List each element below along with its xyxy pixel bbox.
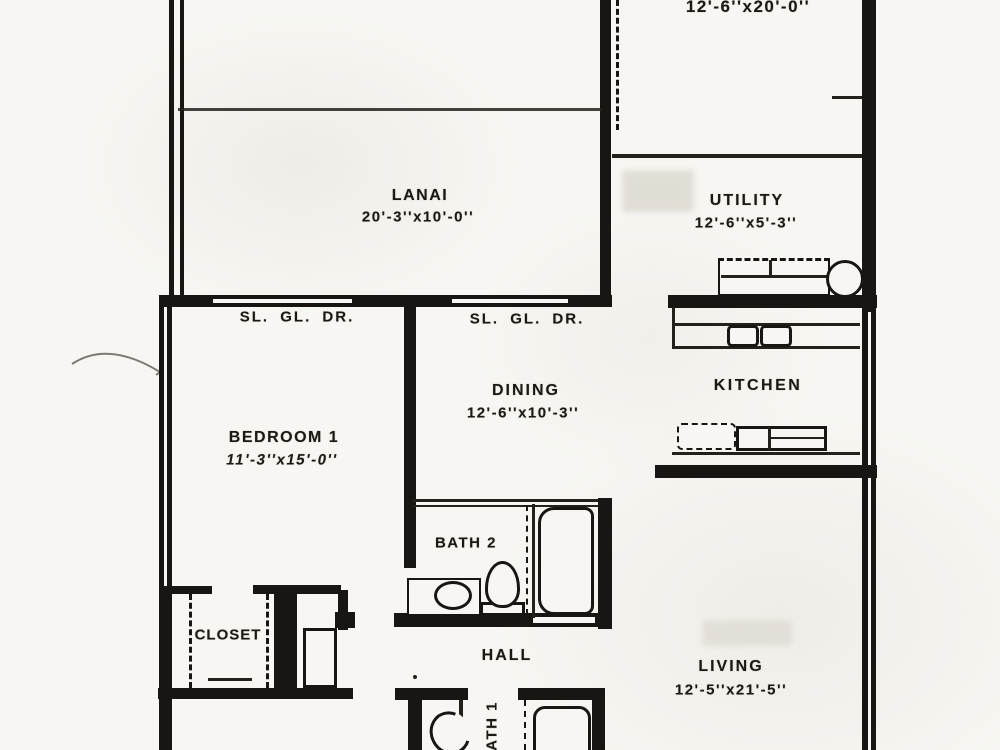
wall-bath1-left xyxy=(408,698,422,750)
closet-rod-dashed-a xyxy=(189,594,192,688)
wall-bedroom1-dining xyxy=(404,296,416,568)
wall-bath1-top-a xyxy=(395,688,468,700)
room-dims-living: 12'-5''x21'-5'' xyxy=(675,682,787,699)
bedroom1-door-leaf xyxy=(303,628,337,688)
laundry-counter-line xyxy=(721,275,828,278)
bath2-partition-dashed xyxy=(526,505,528,615)
floor-plan-page: 12'-6''x20'-0'' LANAI 20'-3''x10'-0'' UT… xyxy=(0,0,1000,750)
wall-bath1-right xyxy=(592,698,605,750)
room-label-bedroom1: BEDROOM 1 xyxy=(229,429,339,447)
room-dims-utility: 12'-6''x5'-3'' xyxy=(695,215,797,232)
scan-ghost xyxy=(702,620,792,646)
wall-closet-top-a xyxy=(159,586,212,594)
scan-ghost xyxy=(622,170,694,212)
wall-closet-right-bar xyxy=(274,585,297,692)
closet-rod-dashed-b xyxy=(266,594,269,688)
room-dims-bedroom1: 11'-3''x15'-0'' xyxy=(225,452,339,469)
wall-lanai-left-inner xyxy=(180,0,184,297)
room-label-lanai: LANAI xyxy=(392,187,448,205)
bath1-tub xyxy=(533,706,591,750)
wall-bath2-right xyxy=(598,498,612,629)
kitchen-sink-basin-1 xyxy=(727,325,759,347)
laundry-counter-divider xyxy=(769,260,772,276)
room-label-utility: UTILITY xyxy=(710,192,784,210)
wall-kitchen-bottom xyxy=(655,465,877,478)
room-label-kitchen: KITCHEN xyxy=(714,377,803,395)
kitchen-sink-basin-2 xyxy=(760,325,792,347)
wall-core xyxy=(164,300,167,586)
sliding-glass-door-label-1: SL. GL. DR. xyxy=(240,309,355,326)
wall-closet-bottom xyxy=(158,688,353,699)
room-label-bath2: BATH 2 xyxy=(435,535,497,552)
bath1-toilet xyxy=(423,705,478,750)
bath2-tub xyxy=(538,507,594,615)
room-label-living: LIVING xyxy=(698,658,763,676)
wall-bedroom2-left xyxy=(600,0,611,300)
lanai-interior-line xyxy=(178,108,602,111)
wall-bath2-top-1 xyxy=(412,499,602,502)
bedroom2-wall-stub xyxy=(832,96,862,99)
bath1-partition-dashed xyxy=(524,700,526,750)
sliding-glass-door-label-2: SL. GL. DR. xyxy=(470,311,585,328)
bedroom2-closet-dashed-line xyxy=(616,0,619,130)
door-jamb-notch xyxy=(335,612,355,628)
wall-bedroom2-bottom xyxy=(612,154,862,158)
room-label-dining: DINING xyxy=(492,382,560,400)
sliding-door-1 xyxy=(213,299,352,303)
room-label-bath1: BATH 1 xyxy=(484,701,501,750)
laundry-tub xyxy=(826,260,864,298)
bath2-toilet xyxy=(485,561,520,608)
room-dims-bedroom2: 12'-6''x20'-0'' xyxy=(686,0,810,17)
wall-lanai-left-outer xyxy=(169,0,174,299)
closet-inner-line xyxy=(208,678,252,681)
room-dims-lanai: 20'-3''x10'-0'' xyxy=(362,209,474,226)
bath2-door xyxy=(533,617,595,623)
room-dims-dining: 12'-6''x10'-3'' xyxy=(467,405,579,422)
ink-dot xyxy=(413,675,417,679)
room-label-closet: CLOSET xyxy=(195,627,262,644)
room-label-hall: HALL xyxy=(482,647,533,665)
wall-core xyxy=(868,312,871,750)
sliding-door-2 xyxy=(452,299,568,303)
refrigerator xyxy=(677,423,736,450)
kitchen-counter-endcap xyxy=(672,307,675,349)
range-inner-line xyxy=(771,437,825,439)
bath2-sink xyxy=(434,581,472,610)
kitchen-counter2-front-line xyxy=(672,452,860,455)
bath2-tub-edge xyxy=(532,504,535,618)
wall-closet-top-b xyxy=(253,585,341,594)
